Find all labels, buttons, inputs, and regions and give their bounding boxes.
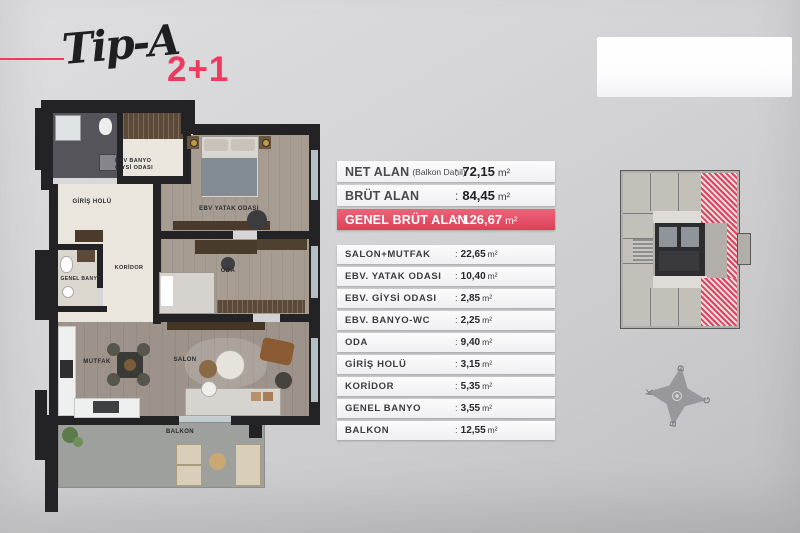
- dining-chair: [107, 373, 120, 386]
- window: [311, 150, 318, 200]
- room-value: 22,65: [461, 249, 486, 260]
- coffee-table: [215, 350, 245, 380]
- room-unit: m²: [482, 381, 492, 391]
- room-label: EBV. YATAK ODASI: [345, 271, 442, 282]
- building-key-plan: [620, 170, 740, 329]
- compass-north-label: K: [644, 388, 655, 396]
- lamp: [262, 139, 270, 147]
- summary-value: 72,15: [462, 164, 495, 179]
- room-label: KORİDOR: [345, 381, 394, 392]
- room-label: EBV. BANYO-WC: [345, 315, 430, 326]
- compass-south-label: G: [701, 396, 712, 404]
- room-row: SALON+MUTFAK : 22,65 m²: [337, 245, 555, 264]
- room-value: 9,40: [461, 337, 480, 348]
- room-label: GENEL BANYO: [345, 403, 421, 414]
- toilet: [99, 118, 112, 135]
- balcony-table: [209, 453, 226, 470]
- room-label: EBV. GİYSİ ODASI: [345, 293, 437, 304]
- entry-hall-floor: [58, 184, 153, 230]
- key-plan-lobby: [653, 276, 707, 288]
- summary-unit: m²: [505, 215, 517, 227]
- key-plan-elevator: [659, 227, 677, 247]
- room-value: 2,85: [461, 293, 480, 304]
- floor-plan-sheet: Tip-A 2+1: [0, 0, 800, 533]
- key-plan-stairs: [633, 239, 653, 261]
- room-unit: m²: [482, 403, 492, 413]
- vanity-cabinet: [77, 250, 95, 262]
- desk-cabinet: [257, 239, 307, 250]
- pillow: [204, 139, 228, 151]
- room-label: BALKON: [345, 425, 389, 436]
- summary-value: 126,67: [462, 212, 502, 227]
- room-row: EBV. GİYSİ ODASI : 2,85 m²: [337, 289, 555, 308]
- summary-table: NET ALAN (Balkon Dahil) : 72,15 m² BRÜT …: [337, 161, 555, 230]
- label-koridor: KORİDOR: [101, 265, 157, 272]
- label-ebv-banyo: EBV BANYOGİYSİ ODASI: [115, 158, 165, 172]
- guest-wc: [60, 256, 73, 273]
- key-plan-lobby: [653, 211, 707, 223]
- balcony-door-glass: [179, 417, 231, 422]
- highlighted-unit-hatch: [701, 278, 737, 326]
- shower: [55, 115, 81, 141]
- room-unit: m²: [488, 249, 498, 259]
- room-unit: m²: [482, 359, 492, 369]
- balcony-armchair: [176, 444, 202, 465]
- summary-label: NET ALAN: [345, 165, 409, 179]
- window: [311, 246, 318, 298]
- logo-placeholder: [597, 37, 792, 97]
- label-balkon: BALKON: [150, 429, 210, 437]
- lamp: [190, 139, 198, 147]
- room-unit: m²: [482, 293, 492, 303]
- double-bed-blanket: [201, 158, 257, 196]
- plant: [73, 437, 83, 447]
- summary-label: GENEL BRÜT ALAN: [345, 213, 467, 227]
- wardrobe: [123, 113, 183, 139]
- summary-unit: m²: [498, 167, 510, 179]
- dining-chair: [107, 343, 120, 356]
- room-label: ODA: [345, 337, 368, 348]
- room-value: 12,55: [461, 425, 486, 436]
- guest-sink: [62, 286, 74, 298]
- single-bed-pillow: [161, 276, 173, 306]
- sofa-cushion: [263, 392, 273, 401]
- room-row: KORİDOR : 5,35 m²: [337, 377, 555, 396]
- sofa-cushion: [251, 392, 261, 401]
- corridor-floor: [103, 230, 153, 324]
- room-unit: m²: [488, 425, 498, 435]
- apartment-floor-plan: EBV BANYOGİYSİ ODASI GİRİŞ HOLÜ EBV YATA…: [35, 100, 320, 512]
- room-row: GİRİŞ HOLÜ : 3,15 m²: [337, 355, 555, 374]
- compass-west-label: B: [668, 419, 679, 427]
- label-genel-banyo: GENEL BANYO: [53, 276, 109, 283]
- label-mutfak: MUTFAK: [67, 359, 127, 367]
- label-giris-holu: GİRİŞ HOLÜ: [62, 199, 122, 207]
- room-unit: m²: [488, 271, 498, 281]
- room-row: GENEL BANYO : 3,55 m²: [337, 399, 555, 418]
- key-plan-core-lower: [659, 251, 699, 271]
- label-oda: ODA: [198, 268, 258, 276]
- summary-row: BRÜT ALAN : 84,45 m²: [337, 185, 555, 206]
- room-label: SALON+MUTFAK: [345, 249, 431, 260]
- compass-east-label: D: [675, 364, 686, 372]
- summary-row: NET ALAN (Balkon Dahil) : 72,15 m²: [337, 161, 555, 182]
- room-label: GİRİŞ HOLÜ: [345, 359, 406, 370]
- pillow: [231, 139, 255, 151]
- balcony-sofa: [235, 444, 261, 486]
- room-area-table: SALON+MUTFAK : 22,65 m² EBV. YATAK ODASI…: [337, 245, 555, 440]
- summary-unit: m²: [498, 191, 510, 203]
- pouf: [275, 372, 292, 389]
- room-value: 2,25: [461, 315, 480, 326]
- hall-cabinet: [75, 230, 103, 242]
- key-plan-elevator: [681, 227, 699, 247]
- summary-label: BRÜT ALAN: [345, 189, 419, 203]
- dining-chair: [137, 343, 150, 356]
- balcony-armchair: [176, 465, 202, 486]
- accent-line: [0, 58, 64, 60]
- desk: [195, 240, 257, 254]
- plan-type-title: Tip-A: [60, 15, 180, 74]
- compass-rose: K D G B: [637, 356, 716, 435]
- room-row: ODA : 9,40 m²: [337, 333, 555, 352]
- side-table: [201, 381, 217, 397]
- room-value: 3,55: [461, 403, 480, 414]
- unit-type-label: 2+1: [167, 50, 229, 90]
- room-row: EBV. YATAK ODASI : 10,40 m²: [337, 267, 555, 286]
- room-value: 10,40: [461, 271, 486, 282]
- room-unit: m²: [482, 315, 492, 325]
- highlighted-unit-hatch: [701, 173, 737, 223]
- kitchen-sink: [93, 401, 119, 413]
- room-value: 3,15: [461, 359, 480, 370]
- dining-chair: [137, 373, 150, 386]
- label-salon: SALON: [155, 357, 215, 365]
- room-unit: m²: [482, 337, 492, 347]
- room-row: BALKON : 12,55 m²: [337, 421, 555, 440]
- oda-wardrobe: [217, 300, 305, 313]
- summary-value: 84,45: [462, 188, 495, 203]
- tv-console: [167, 322, 265, 330]
- room-row: EBV. BANYO-WC : 2,25 m²: [337, 311, 555, 330]
- key-plan-side-tab: [737, 233, 751, 265]
- window: [311, 338, 318, 402]
- summary-row: GENEL BRÜT ALAN : 126,67 m²: [337, 209, 555, 230]
- area-tables: NET ALAN (Balkon Dahil) : 72,15 m² BRÜT …: [337, 161, 555, 443]
- label-ebv-yatak-odasi: EBV YATAK ODASI: [179, 206, 279, 214]
- room-value: 5,35: [461, 381, 480, 392]
